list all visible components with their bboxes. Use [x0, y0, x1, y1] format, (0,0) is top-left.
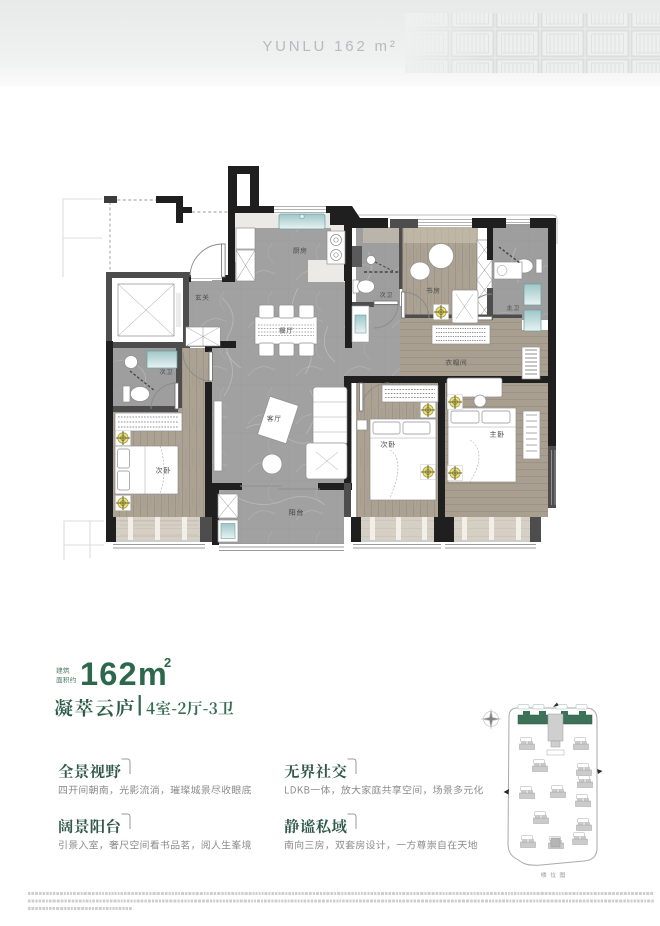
- svg-text:162m: 162m: [80, 656, 168, 692]
- svg-text:YUNLU 162 m²: YUNLU 162 m²: [262, 38, 397, 55]
- svg-text:2: 2: [164, 655, 171, 670]
